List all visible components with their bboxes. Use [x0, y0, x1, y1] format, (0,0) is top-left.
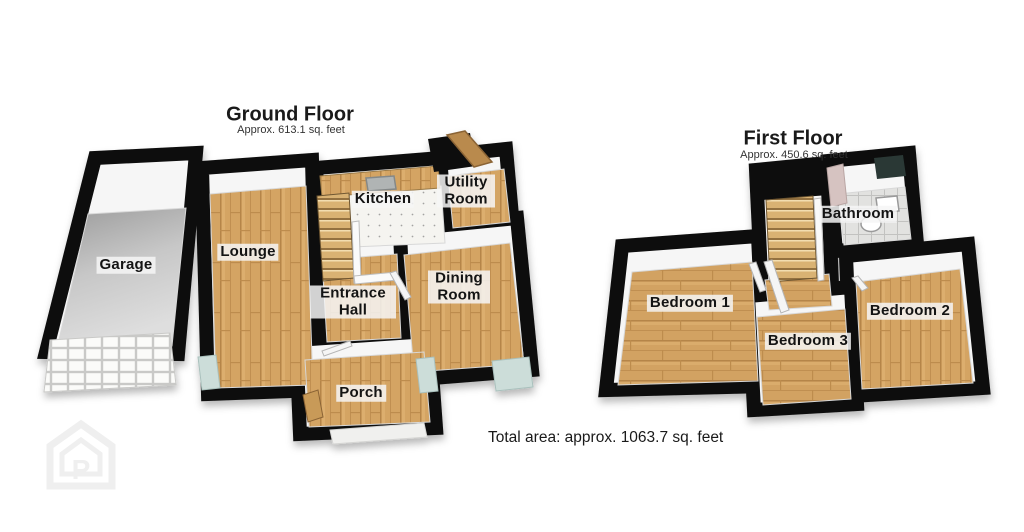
bedroom2-floor — [856, 269, 973, 389]
bedroom3-floor — [757, 309, 851, 405]
shower-panel — [827, 164, 847, 207]
watermark-letter: P — [72, 454, 91, 485]
bedroom1-floor — [618, 262, 758, 385]
house-logo-icon: P — [50, 424, 112, 486]
ground-stairs — [317, 193, 354, 281]
toilet-bowl — [861, 217, 881, 232]
floorplan-page: P Ground Floor Approx. 613.1 sq. feet Fi… — [0, 0, 1024, 532]
lounge-floor — [210, 186, 313, 388]
bathroom-window — [874, 155, 906, 179]
kitchen-sink — [366, 176, 396, 191]
garage-door — [44, 333, 176, 392]
floorplan-drawing: P — [0, 0, 1024, 532]
porch-glass-right — [416, 357, 438, 393]
bathroom-floor — [838, 187, 911, 245]
ground-floor-plan — [44, 131, 533, 444]
toilet-tank — [876, 196, 899, 213]
first-floor-plan — [606, 153, 983, 410]
porch-glass-left — [198, 355, 220, 390]
utility-floor — [448, 169, 510, 228]
stair-railing — [352, 221, 361, 283]
porch-floor — [305, 352, 430, 427]
dining-glass — [492, 357, 533, 391]
